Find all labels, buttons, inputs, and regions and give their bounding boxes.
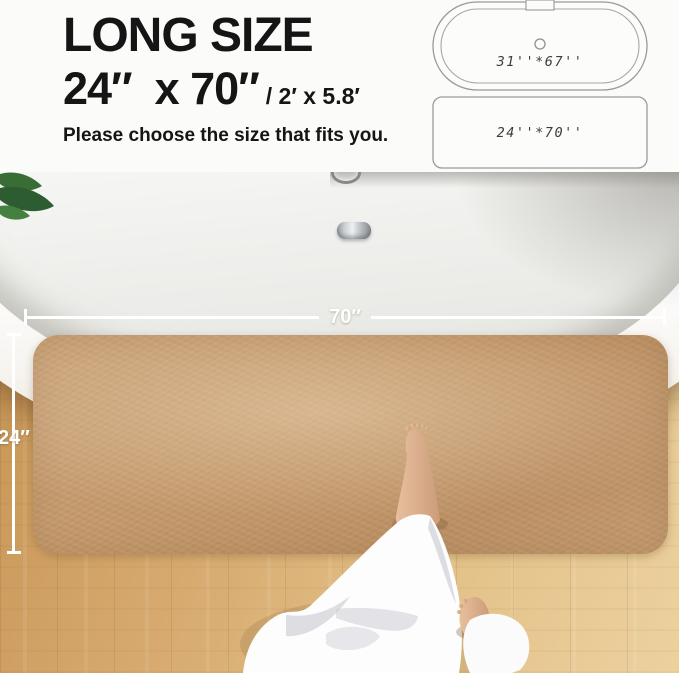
tub-drain-stopper-icon	[337, 222, 371, 239]
robe-fold	[286, 596, 350, 636]
size-hint-text: Please choose the size that fits you.	[63, 125, 388, 147]
header-text-block: LONG SIZE 24″ x 70″ / 2′ x 5.8′ Please c…	[63, 10, 388, 147]
dimension-end-cap	[7, 551, 21, 554]
product-image: LONG SIZE 24″ x 70″ / 2′ x 5.8′ Please c…	[0, 0, 679, 673]
size-inches: 24″ x 70″	[63, 65, 259, 113]
tub-overflow-notch-icon	[526, 0, 554, 10]
tub-size-diagram: 31''*67''	[433, 0, 647, 90]
size-diagrams: 31''*67'' 24''*70''	[425, 0, 679, 172]
mat-size-label: 24''*70''	[497, 125, 584, 141]
robe-shadow	[240, 599, 500, 673]
robe-cuff	[463, 614, 529, 673]
height-label: 24″	[0, 428, 30, 448]
size-row: 24″ x 70″ / 2′ x 5.8′	[63, 65, 388, 113]
height-dimension-line: 24″	[12, 333, 15, 554]
bath-mat	[33, 335, 668, 554]
width-label: 70″	[329, 307, 361, 327]
product-photo: 70″ 24″	[0, 172, 679, 673]
page-title: LONG SIZE	[63, 10, 388, 62]
person-second-foot	[459, 597, 489, 640]
robe-belt	[336, 608, 418, 631]
size-feet: / 2′ x 5.8′	[266, 83, 360, 110]
dimension-end-cap	[7, 333, 21, 336]
foot-shadow	[456, 624, 496, 640]
width-dimension-line: 70″	[24, 309, 666, 325]
dimension-end-cap	[663, 309, 666, 325]
person-second-toes	[457, 599, 467, 614]
robe-belt-knot	[326, 627, 380, 650]
tub-size-label: 31''*67''	[496, 54, 584, 70]
header-section: LONG SIZE 24″ x 70″ / 2′ x 5.8′ Please c…	[0, 0, 679, 172]
mat-size-diagram: 24''*70''	[433, 97, 647, 168]
